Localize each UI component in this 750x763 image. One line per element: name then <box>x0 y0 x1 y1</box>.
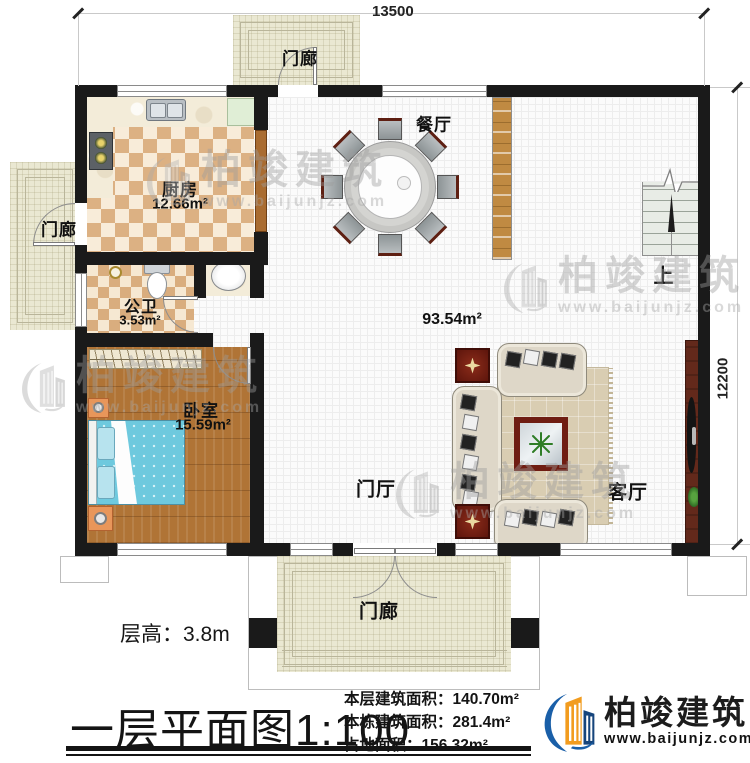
label-porch-bottom: 门廊 <box>359 597 399 624</box>
tv-stand <box>692 427 696 445</box>
wall <box>698 85 710 556</box>
staircase <box>642 182 700 256</box>
door-opening <box>278 85 318 97</box>
dining-chair <box>321 175 343 199</box>
burner <box>95 137 107 149</box>
label-dining: 餐厅 <box>416 111 452 136</box>
extension-line <box>78 13 79 86</box>
area-stats: 本层建筑面积：140.70m² 本栋建筑面积：281.4m² 占地面积：156.… <box>344 687 519 756</box>
label-porch-top: 门廊 <box>282 45 318 70</box>
wall <box>437 543 455 556</box>
wall <box>487 85 710 97</box>
wardrobe-rail <box>90 359 201 360</box>
label-bedroom-area: 15.59m² <box>175 417 231 434</box>
wall <box>194 265 206 298</box>
sink-basin <box>167 103 183 118</box>
kitchen-sliding-door <box>255 130 267 232</box>
dining-table-top <box>358 155 422 219</box>
door-leaf <box>33 242 75 246</box>
wall <box>318 85 382 97</box>
wall <box>75 85 87 203</box>
porch-pillar <box>249 618 277 648</box>
wall <box>254 232 268 252</box>
window <box>117 543 227 556</box>
brand-url: www.baijunjz.com <box>604 731 750 747</box>
label-foyer: 门厅 <box>356 475 396 502</box>
end-table <box>455 504 490 539</box>
brand-name: 柏竣建筑 <box>604 695 750 731</box>
sink-basin <box>150 103 166 118</box>
sofa-top <box>497 343 587 397</box>
wall <box>250 333 264 543</box>
stat-floor-area: 本层建筑面积：140.70m² <box>344 687 519 710</box>
dining-chair <box>378 118 402 140</box>
nightstand <box>88 506 113 531</box>
pillow-bed <box>97 466 115 499</box>
headboard <box>89 421 97 504</box>
label-main-area: 93.54m² <box>422 311 482 329</box>
nightstand-knob <box>93 402 104 413</box>
label-bathroom-area: 3.53m² <box>119 313 160 328</box>
floor-height-label: 层高：3.8m <box>120 618 230 648</box>
watermark-logo-icon <box>18 358 68 415</box>
door-leaf <box>163 296 198 300</box>
washbasin <box>211 261 246 291</box>
porch-pillar <box>511 618 539 648</box>
fridge <box>227 98 256 126</box>
entry-door-leaf <box>354 548 395 554</box>
nightstand <box>88 398 109 418</box>
floor-drain <box>109 266 122 279</box>
porch-step-line <box>282 650 507 651</box>
porch-left <box>10 162 80 330</box>
bed <box>88 420 185 505</box>
wall <box>75 327 87 556</box>
wardrobe <box>89 349 202 369</box>
wall <box>227 543 290 556</box>
dining-chair <box>378 234 402 256</box>
outdoor-platform-outline <box>60 556 109 583</box>
kitchen-sink <box>146 99 186 121</box>
nightstand-knob <box>94 512 107 525</box>
window <box>382 85 487 97</box>
floor-plan-page: 13500 12200 门廊 门廊 门廊 餐厅 厨房 12.66m² 公卫 3.… <box>0 0 750 763</box>
extension-line <box>710 544 750 545</box>
sofa-left <box>452 386 502 512</box>
dining-chair <box>437 175 459 199</box>
end-table <box>455 348 490 383</box>
door-leaf <box>247 347 251 384</box>
stat-land-area: 占地面积：156.32m² <box>344 733 519 756</box>
stove <box>89 132 113 170</box>
label-kitchen-area: 12.66m² <box>152 196 208 213</box>
stair-rail <box>671 228 672 256</box>
dimension-right-label: 12200 <box>715 344 732 414</box>
stair-break-line <box>640 166 702 192</box>
brand-logo-icon <box>540 688 598 754</box>
wall <box>254 97 268 130</box>
stair-arrow <box>668 194 675 232</box>
porch-step-line <box>282 666 507 667</box>
window <box>290 543 333 556</box>
plant-icon <box>527 430 555 458</box>
lazy-susan <box>397 176 411 190</box>
wood-screen-divider <box>492 97 512 260</box>
wall <box>87 252 268 265</box>
wall <box>75 245 87 273</box>
label-living: 客厅 <box>608 478 648 505</box>
outdoor-platform-outline <box>687 556 747 596</box>
wall <box>87 333 213 347</box>
wall <box>250 252 264 298</box>
wall <box>333 543 353 556</box>
pillow-bed <box>97 427 115 460</box>
window <box>75 273 87 327</box>
coffee-table <box>514 417 568 471</box>
brand-logo: 柏竣建筑 www.baijunjz.com <box>540 688 750 754</box>
wall <box>227 85 278 97</box>
stat-building-area: 本栋建筑面积：281.4m² <box>344 710 519 733</box>
dining-table <box>344 141 436 233</box>
window <box>117 85 227 97</box>
extension-line <box>704 13 705 86</box>
dimension-top-label: 13500 <box>372 3 414 20</box>
label-stairs-up: 上 <box>654 260 675 289</box>
burner <box>95 152 107 164</box>
window <box>455 543 498 556</box>
extension-line <box>710 87 750 88</box>
wall <box>75 543 117 556</box>
label-porch-left: 门廊 <box>41 216 77 241</box>
wall <box>672 543 710 556</box>
dimension-line-right <box>737 88 738 545</box>
wall <box>498 543 560 556</box>
window <box>560 543 672 556</box>
entry-door-leaf <box>395 548 436 554</box>
